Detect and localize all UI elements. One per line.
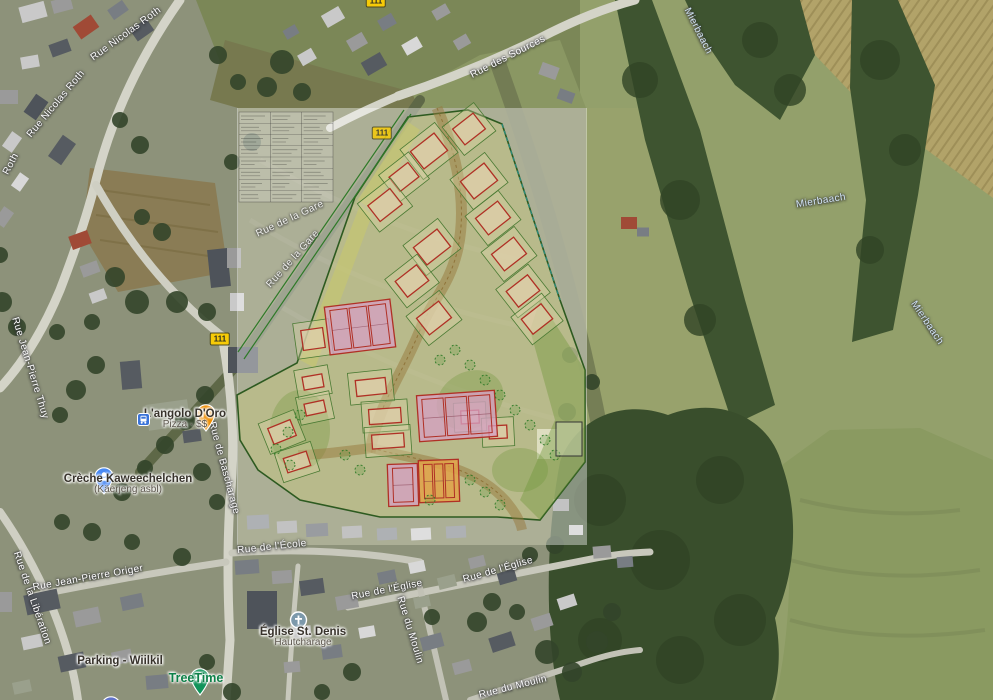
street-label: Rue des Sources — [469, 33, 548, 80]
street-label: Roth — [1, 151, 21, 176]
poi-name[interactable]: TreeTime — [169, 671, 224, 685]
water-label: Mierbaach — [682, 6, 715, 56]
poi-label-creche[interactable]: Crèche Kaweechelchen(Käerjeng asbl) — [64, 473, 192, 496]
street-label: Rue de l'École — [237, 538, 308, 556]
map-canvas[interactable]: Rue Nicolas RothRue Nicolas RothRothRue … — [0, 0, 993, 700]
street-label: Rue de la Libération — [11, 550, 53, 646]
poi-label-eglise-st-denis[interactable]: Église St. DenisHautcharage — [260, 626, 346, 649]
route-shield-111: 111 — [366, 0, 386, 8]
water-label: Mierbaach — [908, 299, 945, 347]
street-label: Rue de Bascharage — [206, 421, 241, 516]
street-label: Rue de l'Église — [462, 555, 535, 586]
street-label: Rue Jean-Pierre Thuy — [9, 316, 50, 420]
poi-subtitle: (Käerjeng asbl) — [64, 485, 192, 496]
poi-label-langolo-doro[interactable]: L'angolo D'OroPizza · $$ — [144, 408, 226, 431]
route-shield-111: 111 — [372, 127, 392, 140]
poi-label-parking-wiilkil[interactable]: Parking - Wiilkil — [77, 655, 163, 667]
street-label: Rue Nicolas Roth — [25, 68, 88, 140]
poi-subtitle: Pizza · $$ — [144, 420, 226, 431]
street-label: Rue de la Gare — [264, 228, 321, 290]
map-labels-layer: Rue Nicolas RothRue Nicolas RothRothRue … — [0, 0, 993, 700]
poi-subtitle: Hautcharage — [260, 638, 346, 649]
poi-label-treetime[interactable]: TreeTime — [169, 672, 224, 685]
water-label: Mierbaach — [795, 192, 846, 211]
street-label: Rue du Moulin — [478, 673, 548, 700]
poi-name[interactable]: Parking - Wiilkil — [77, 655, 163, 667]
route-shield-111: 111 — [210, 333, 230, 346]
street-label: Rue Jean-Pierre Origer — [32, 563, 144, 593]
street-label: Rue Nicolas Roth — [89, 5, 164, 63]
street-label: Rue de l'Église — [350, 578, 423, 603]
street-label: Rue du Moulin — [395, 595, 426, 665]
